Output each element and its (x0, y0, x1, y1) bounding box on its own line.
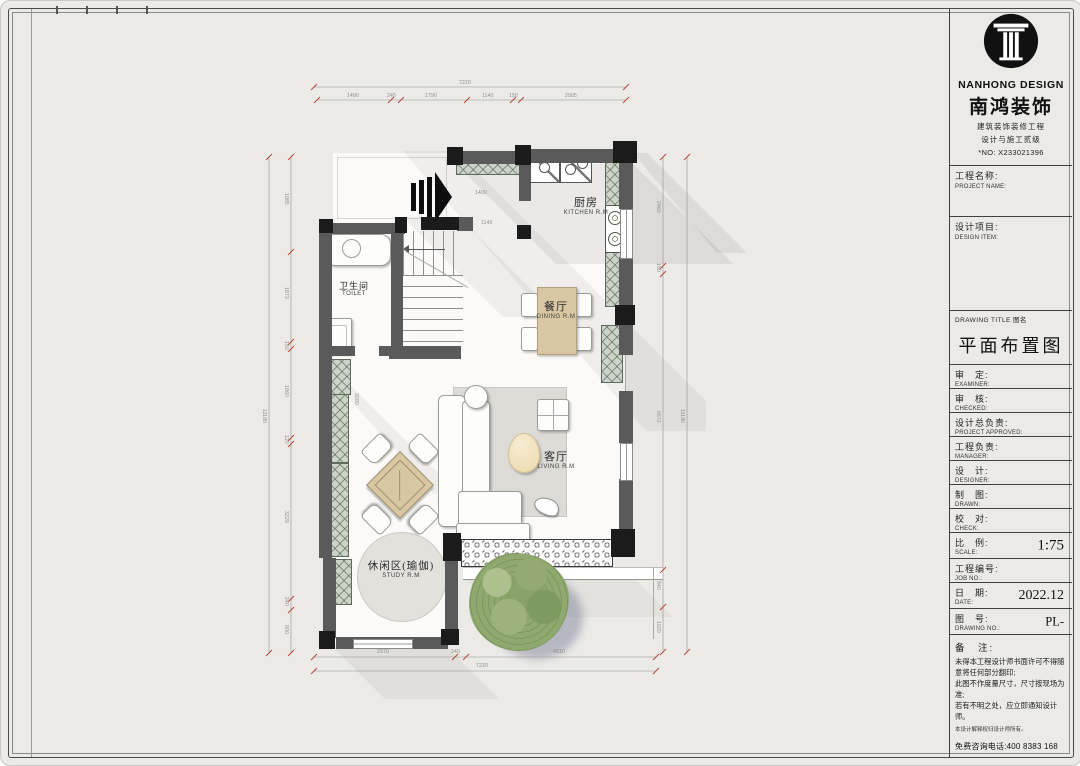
dim-left-3: 150 (283, 341, 288, 350)
dim-bottom-total: 7220 (476, 664, 488, 669)
column (517, 225, 531, 239)
sofa-pillow (464, 385, 488, 409)
row-label-cn: 设 计: (955, 464, 1067, 477)
dim-bottom-1: 2970 (377, 650, 389, 655)
wall-left-mid (319, 346, 332, 558)
row-label-en: MANAGER: (955, 454, 1067, 460)
bath-basin-icon (342, 239, 361, 258)
living-label-cn: 客厅 (525, 451, 587, 464)
column (319, 219, 333, 233)
column (443, 533, 461, 561)
drawing-no-value: PL- (1045, 614, 1064, 629)
design-item-field: 设计项目: DESIGN ITEM: (950, 217, 1072, 311)
wall-stair-left (391, 231, 403, 349)
brand-name-cn: 南鸿装饰 (955, 92, 1067, 119)
dim-left-1: 1985 (283, 193, 288, 205)
dim-inner-a: 1400 (475, 191, 487, 196)
entry-arrow-bar (411, 183, 416, 211)
scale-value: 1:75 (1037, 537, 1064, 554)
drawing-title-label: DRAWING TITLE 图名 (955, 314, 1067, 324)
balcony-opening-line (625, 355, 626, 391)
dim-left-6: 3229 (283, 511, 288, 523)
dim-left-7: 240 (283, 597, 288, 606)
frame-tick (86, 6, 88, 14)
title-block: NANHONG DESIGN 南鸿装饰 建筑装饰装修工程 设计与施工贰级 *NO… (949, 9, 1072, 757)
row-designer: 设 计: DESIGNER: (950, 461, 1072, 485)
wall-left-lower (323, 558, 336, 638)
column (319, 631, 335, 649)
dim-top-2: 245 (387, 94, 396, 99)
knob-icon (565, 164, 576, 175)
wall-kitchen-partition (519, 163, 531, 201)
dining-chair (521, 327, 538, 351)
brand-cert-2: 设计与施工贰级 (955, 134, 1067, 145)
row-date: 日 期: DATE: 2022.12 (950, 583, 1072, 609)
room-label-study: 休闲区(瑜伽) STUDY R.M (349, 561, 453, 581)
room-label-kitchen: 厨房 KITCHEN R.M (546, 197, 626, 217)
drawing-title-field: DRAWING TITLE 图名 平面布置图 (950, 311, 1072, 366)
row-label-en: DRAWN: (955, 502, 1067, 508)
row-label-cn: 审 定: (955, 368, 1067, 381)
row-label-cn: 审 核: (955, 392, 1067, 405)
row-label-cn: 工程编号: (955, 562, 1067, 575)
toilet-label-en: TOILET (323, 291, 385, 299)
row-examiner: 审 定: EXAMINER: (950, 365, 1072, 389)
brand-cert-1: 建筑装饰装修工程 (955, 121, 1067, 132)
license-no: *NO: X233021396 (955, 148, 1067, 157)
company-block: NANHONG DESIGN 南鸿装饰 建筑装饰装修工程 设计与施工贰级 *NO… (950, 9, 1072, 166)
living-label-en: LIVING R.M (525, 464, 587, 472)
frame-tick (116, 6, 118, 14)
stair-upper-flight (403, 231, 463, 275)
frame-tick (56, 6, 58, 14)
column (611, 529, 635, 557)
column (441, 629, 459, 645)
column (615, 305, 635, 325)
dim-left-8: 900 (283, 625, 288, 634)
dim-left-4: 1860 (283, 385, 288, 397)
room-label-living: 客厅 LIVING R.M (525, 451, 587, 471)
wall-right-2 (619, 257, 633, 305)
wall-right-4 (619, 391, 633, 443)
sink-basin-icon (539, 162, 550, 173)
dim-top-total: 7220 (459, 81, 471, 86)
stair-lower-flight (403, 275, 463, 345)
column (447, 147, 463, 165)
dim-inner-b: 1140 (481, 221, 493, 226)
row-drawn: 制 图: DRAWN: (950, 485, 1072, 509)
window (353, 639, 413, 649)
room-label-dining: 餐厅 DINING R.M (529, 301, 583, 321)
dim-left-total: 11180 (261, 409, 266, 423)
kitchen-label-en: KITCHEN R.M (546, 210, 626, 218)
stair-direction-line (407, 249, 445, 250)
dim-right-3: 6672 (655, 411, 660, 423)
brand-name-en: NANHONG DESIGN (955, 79, 1067, 91)
row-project-approved: 设计总负责: PROJECT APPROVED: (950, 413, 1072, 437)
column (613, 141, 637, 163)
row-label-en: CHECK: (955, 526, 1067, 532)
row-label-cn: 校 对: (955, 512, 1067, 525)
binding-margin-line (31, 9, 32, 757)
room-label-toilet: 卫生间 TOILET (323, 281, 385, 299)
kitchen-label-cn: 厨房 (546, 197, 626, 210)
row-label-en: DESIGNER: (955, 478, 1067, 484)
dim-right-total: 11180 (679, 409, 684, 423)
study-label-en: STUDY R.M (349, 573, 453, 581)
row-label-en: JOB NO.: (955, 576, 1067, 582)
column (395, 217, 407, 233)
row-drawing-no: 图 号: DRAWING NO.: PL- (950, 609, 1072, 635)
row-scale: 比 例: SCALE: 1:75 (950, 533, 1072, 559)
project-name-field: 工程名称: PROJECT NAME: (950, 166, 1072, 217)
row-label-cn: 设计总负责: (955, 416, 1067, 429)
row-label-cn: 工程负责: (955, 440, 1067, 453)
drawing-title-value: 平面布置图 (955, 332, 1067, 358)
entry-arrow-bar (419, 180, 424, 214)
wall-stair-bottom (389, 346, 461, 359)
row-label-en: PROJECT APPROVED: (955, 430, 1067, 436)
company-logo-icon (982, 12, 1040, 70)
entry-arrow-bar (427, 177, 432, 217)
dim-top-5: 150 (509, 94, 518, 99)
row-job-no: 工程编号: JOB NO.: (950, 559, 1072, 583)
drawing-sheet: 厨房 KITCHEN R.M 卫生间 TOILET 餐厅 DINING R.M … (0, 0, 1080, 766)
dining-chair (575, 327, 592, 351)
frame-tick (146, 6, 148, 14)
row-checked: 审 核: CHECKED: (950, 389, 1072, 413)
dim-top-3: 1790 (425, 94, 437, 99)
note-line-1: 未得本工程设计师书面许可不得随意将任何部分翻印; (955, 657, 1067, 679)
window (620, 443, 633, 481)
project-name-label-en: PROJECT NAME: (955, 184, 1067, 190)
dim-left-5: 120 (283, 435, 288, 444)
row-label-en: EXAMINER: (955, 382, 1067, 388)
coffee-table (537, 399, 569, 431)
note-line-3: 若有不明之处，应立即通知设计师。 (955, 701, 1067, 723)
dim-bottom-3: 4010 (553, 650, 565, 655)
dining-label-en: DINING R.M (529, 314, 583, 322)
date-value: 2022.12 (1019, 588, 1065, 604)
dining-label-cn: 餐厅 (529, 301, 583, 314)
dim-top-6: 2905 (565, 94, 577, 99)
toilet-label-cn: 卫生间 (323, 281, 385, 291)
entry-arrow-icon (435, 172, 452, 222)
wall-right-5 (619, 479, 633, 531)
project-name-label-cn: 工程名称: (955, 169, 1067, 182)
dim-left-2: 1873 (283, 287, 288, 299)
column (515, 145, 531, 165)
dim-top-4: 1140 (482, 94, 494, 99)
dim-right-4: 840 (655, 581, 660, 590)
dim-inner-c: 3000 (353, 393, 358, 405)
design-item-label-cn: 设计项目: (955, 220, 1067, 233)
hotline: 免费咨询电话:400 8383 168 (955, 741, 1067, 752)
row-label-en: CHECKED: (955, 406, 1067, 412)
dim-top-1: 1490 (347, 94, 359, 99)
row-label-cn: 制 图: (955, 488, 1067, 501)
notes-label: 备 注: (955, 640, 1067, 654)
dim-bottom-2: 240 (451, 650, 460, 655)
note-line-4: 本设计解释权归设计师所有。 (955, 725, 1067, 733)
dim-right-2: 180 (655, 263, 660, 272)
dim-right-1: 2460 (655, 201, 660, 213)
terrace-edge-line (653, 567, 654, 639)
dim-right-5: 1020 (655, 621, 660, 633)
wall-entry-stub (457, 217, 473, 231)
study-label-cn: 休闲区(瑜伽) (349, 561, 453, 573)
row-check: 校 对: CHECK: (950, 509, 1072, 533)
row-manager: 工程负责: MANAGER: (950, 437, 1072, 461)
wall-right-3 (619, 323, 633, 355)
wall-top-kitchen (519, 149, 621, 163)
note-line-2: 此图不作度量尺寸，尺寸按现场为准; (955, 679, 1067, 701)
design-item-label-en: DESIGN ITEM: (955, 235, 1067, 241)
notes-block: 备 注: 未得本工程设计师书面许可不得随意将任何部分翻印; 此图不作度量尺寸，尺… (950, 635, 1072, 757)
